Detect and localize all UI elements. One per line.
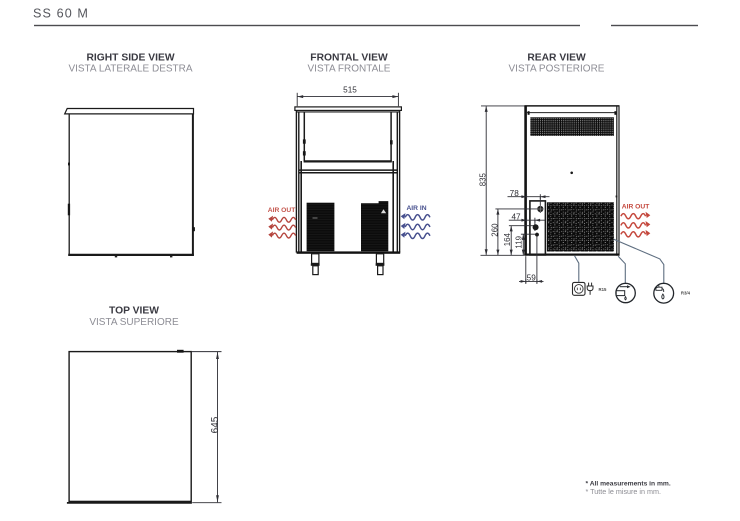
svg-text:VISTA FRONTALE: VISTA FRONTALE bbox=[308, 64, 391, 75]
svg-text:* Tutte le misure in mm.: * Tutte le misure in mm. bbox=[586, 487, 662, 496]
svg-text:R3/4: R3/4 bbox=[681, 291, 691, 296]
svg-text:VISTA LATERALE DESTRA: VISTA LATERALE DESTRA bbox=[68, 64, 192, 75]
svg-text:AIR OUT: AIR OUT bbox=[622, 204, 650, 211]
svg-text:164: 164 bbox=[503, 233, 512, 247]
svg-text:835: 835 bbox=[478, 173, 487, 187]
svg-text:AIR IN: AIR IN bbox=[406, 205, 426, 212]
svg-text:AIR OUT: AIR OUT bbox=[268, 207, 296, 214]
svg-text:515: 515 bbox=[343, 85, 357, 94]
svg-text:TOP VIEW: TOP VIEW bbox=[109, 306, 159, 317]
svg-text:REAR VIEW: REAR VIEW bbox=[527, 52, 586, 63]
svg-text:FRONTAL VIEW: FRONTAL VIEW bbox=[310, 52, 388, 63]
svg-text:VISTA POSTERIORE: VISTA POSTERIORE bbox=[509, 64, 605, 75]
svg-text:645: 645 bbox=[210, 416, 221, 433]
svg-text:R15: R15 bbox=[599, 287, 607, 292]
svg-text:119: 119 bbox=[515, 235, 524, 248]
svg-text:260: 260 bbox=[491, 223, 500, 237]
svg-text:VISTA SUPERIORE: VISTA SUPERIORE bbox=[89, 317, 179, 328]
svg-text:RIGHT SIDE VIEW: RIGHT SIDE VIEW bbox=[86, 52, 174, 63]
svg-text:SS 60 M: SS 60 M bbox=[33, 6, 89, 20]
